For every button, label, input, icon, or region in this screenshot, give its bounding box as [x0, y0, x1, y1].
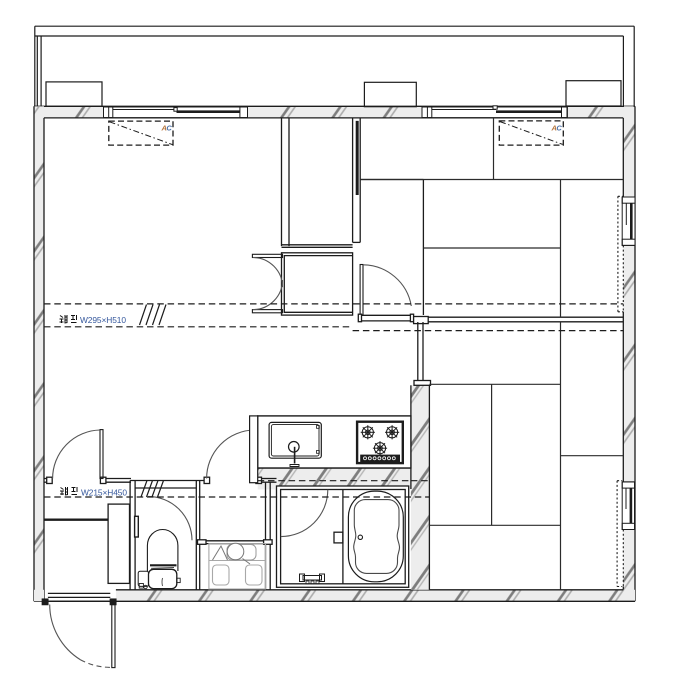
- svg-text:AC: AC: [551, 124, 563, 133]
- svg-text:W215×H450: W215×H450: [81, 487, 127, 497]
- svg-text:W295×H510: W295×H510: [80, 315, 126, 325]
- svg-text:AC: AC: [161, 123, 173, 132]
